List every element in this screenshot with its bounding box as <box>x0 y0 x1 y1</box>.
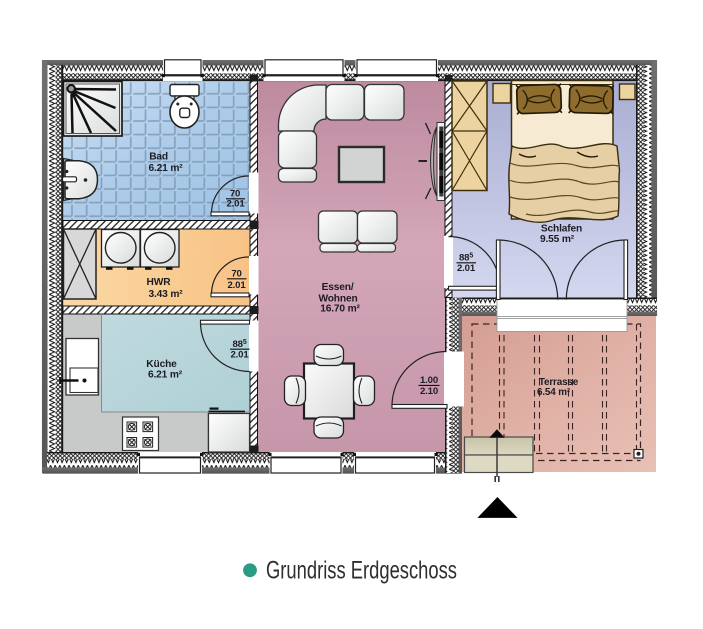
svg-text:2.01: 2.01 <box>227 280 246 291</box>
svg-text:3.43 m²: 3.43 m² <box>148 289 183 300</box>
svg-text:2.01: 2.01 <box>226 198 245 209</box>
svg-text:HWR: HWR <box>147 277 172 288</box>
svg-text:16.70 m²: 16.70 m² <box>320 303 360 314</box>
svg-text:2.10: 2.10 <box>420 386 438 397</box>
svg-text:Schlafen: Schlafen <box>541 223 582 234</box>
svg-text:2.01: 2.01 <box>457 263 476 274</box>
svg-text:Grundriss Erdgeschoss: Grundriss Erdgeschoss <box>266 558 457 585</box>
svg-text:6.21 m²: 6.21 m² <box>148 369 183 380</box>
svg-text:9.55 m²: 9.55 m² <box>540 234 575 245</box>
svg-text:Bad: Bad <box>149 152 168 163</box>
svg-text:70: 70 <box>231 269 241 280</box>
svg-text:2.01: 2.01 <box>230 349 249 360</box>
svg-text:Essen/: Essen/ <box>322 282 354 293</box>
svg-text:1.00: 1.00 <box>420 375 438 386</box>
svg-text:6.54 m²: 6.54 m² <box>537 387 571 398</box>
svg-text:6.21 m²: 6.21 m² <box>148 163 183 174</box>
